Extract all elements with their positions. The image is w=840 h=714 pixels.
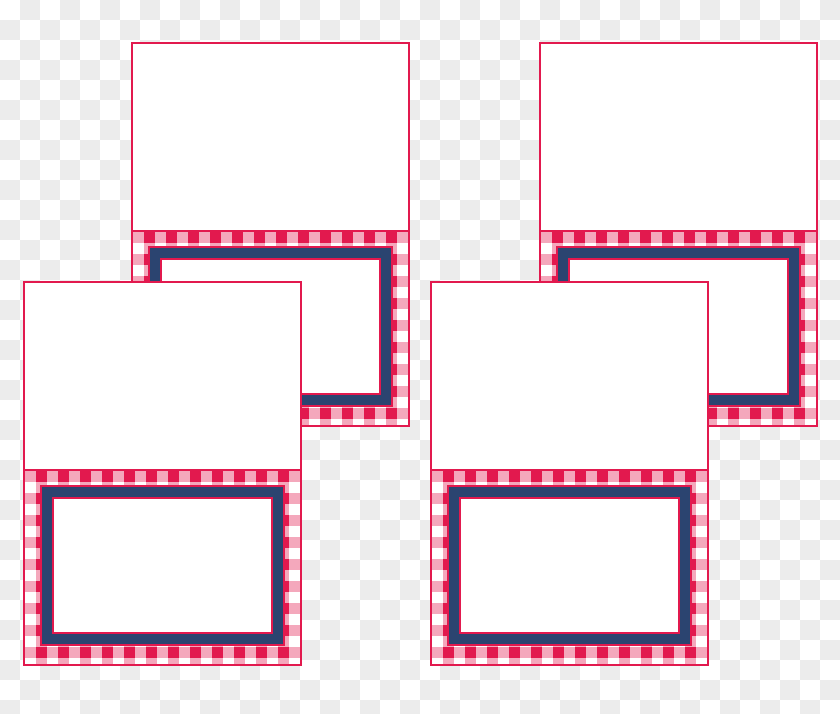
name-label-field [459,497,680,634]
blank-front-panel [539,42,818,232]
blank-front-panel [23,281,302,471]
name-label-frame [40,485,285,646]
name-label-field [52,497,273,634]
transparency-checkerboard-background [0,0,840,714]
name-label-navy-border [449,487,690,644]
place-card-bottom-right [430,281,709,666]
place-card-bottom-left [23,281,302,666]
name-label-frame [447,485,692,646]
name-label-navy-border [42,487,283,644]
gingham-panel [430,471,709,666]
blank-front-panel [430,281,709,471]
blank-front-panel [131,42,410,232]
gingham-panel [23,471,302,666]
